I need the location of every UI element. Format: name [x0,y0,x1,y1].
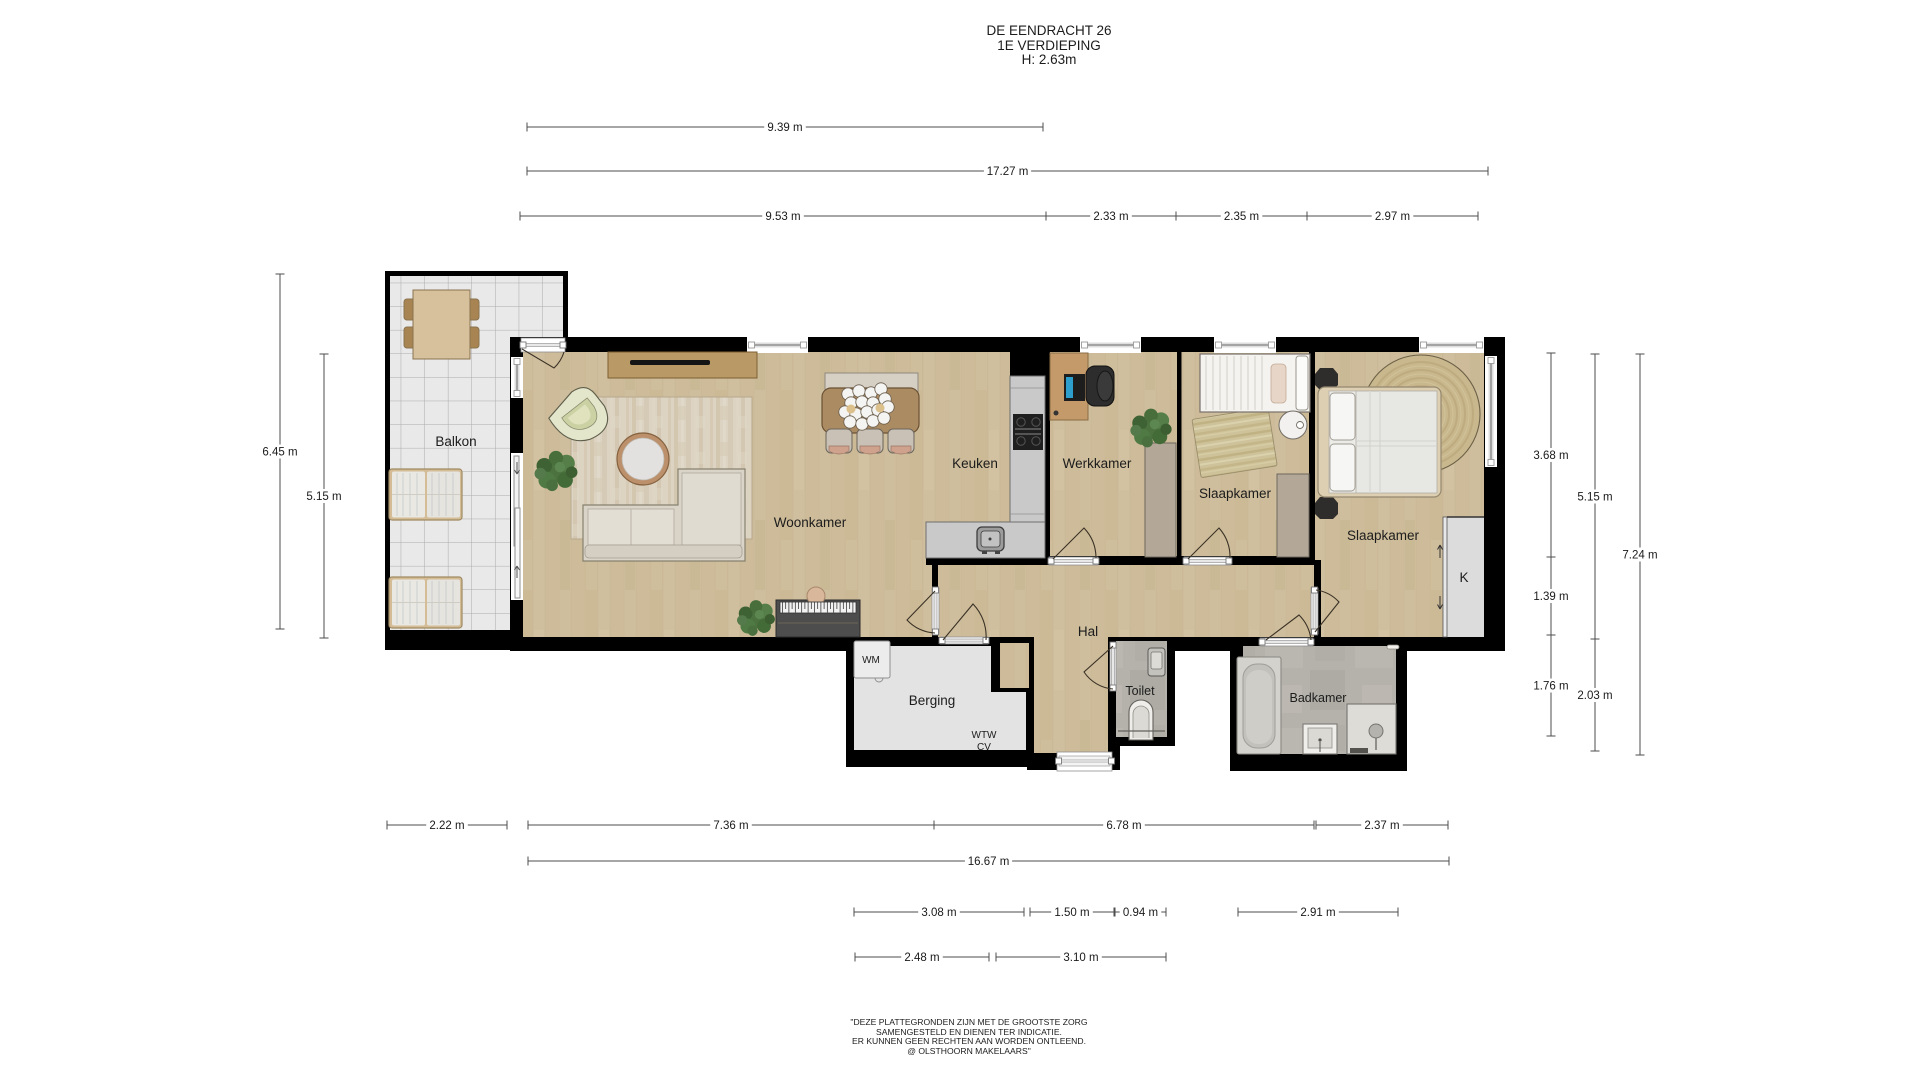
svg-text:3.08 m: 3.08 m [921,907,956,919]
svg-text:2.35 m: 2.35 m [1224,211,1259,223]
svg-text:1.39 m: 1.39 m [1533,591,1568,603]
svg-text:16.67 m: 16.67 m [968,856,1010,868]
svg-text:9.39 m: 9.39 m [767,122,802,134]
svg-text:7.24 m: 7.24 m [1622,550,1657,562]
svg-text:6.45 m: 6.45 m [262,447,297,459]
svg-text:Woonkamer: Woonkamer [774,515,847,530]
svg-text:Hal: Hal [1078,624,1098,639]
svg-text:5.15 m: 5.15 m [306,491,341,503]
svg-text:Berging: Berging [909,693,956,708]
svg-text:Werkkamer: Werkkamer [1063,456,1132,471]
svg-text:2.91 m: 2.91 m [1300,907,1335,919]
svg-text:Slaapkamer: Slaapkamer [1347,528,1420,543]
svg-text:Toilet: Toilet [1125,684,1155,698]
svg-text:WM: WM [862,655,880,666]
svg-text:1.50 m: 1.50 m [1054,907,1089,919]
svg-text:ER KUNNEN GEEN RECHTEN AAN WOR: ER KUNNEN GEEN RECHTEN AAN WORDEN ONTLEE… [852,1036,1086,1046]
svg-text:K: K [1459,570,1468,585]
svg-text:17.27 m: 17.27 m [987,166,1029,178]
svg-text:1.76 m: 1.76 m [1533,681,1568,693]
svg-text:DE EENDRACHT 26: DE EENDRACHT 26 [986,23,1111,38]
svg-text:2.37 m: 2.37 m [1364,820,1399,832]
svg-text:5.15 m: 5.15 m [1577,492,1612,504]
svg-text:1E VERDIEPING: 1E VERDIEPING [997,38,1101,53]
svg-text:WTW: WTW [972,730,998,741]
svg-text:Slaapkamer: Slaapkamer [1199,486,1272,501]
svg-text:9.53 m: 9.53 m [765,211,800,223]
svg-text:2.22 m: 2.22 m [429,820,464,832]
svg-text:Badkamer: Badkamer [1290,691,1347,705]
svg-text:"DEZE PLATTEGRONDEN ZIJN MET D: "DEZE PLATTEGRONDEN ZIJN MET DE GROOTSTE… [850,1017,1087,1027]
svg-text:0.94 m: 0.94 m [1123,907,1158,919]
svg-text:2.33 m: 2.33 m [1093,211,1128,223]
svg-text:H: 2.63m: H: 2.63m [1022,52,1077,67]
svg-text:@ OLSTHOORN MAKELAARS": @ OLSTHOORN MAKELAARS" [907,1046,1031,1056]
svg-text:2.03 m: 2.03 m [1577,690,1612,702]
svg-text:CV: CV [977,742,991,753]
svg-text:Balkon: Balkon [435,434,476,449]
svg-text:Keuken: Keuken [952,456,998,471]
svg-text:7.36 m: 7.36 m [713,820,748,832]
svg-text:3.10 m: 3.10 m [1063,952,1098,964]
svg-text:6.78 m: 6.78 m [1106,820,1141,832]
svg-text:2.97 m: 2.97 m [1375,211,1410,223]
svg-text:3.68 m: 3.68 m [1533,450,1568,462]
svg-text:2.48 m: 2.48 m [904,952,939,964]
